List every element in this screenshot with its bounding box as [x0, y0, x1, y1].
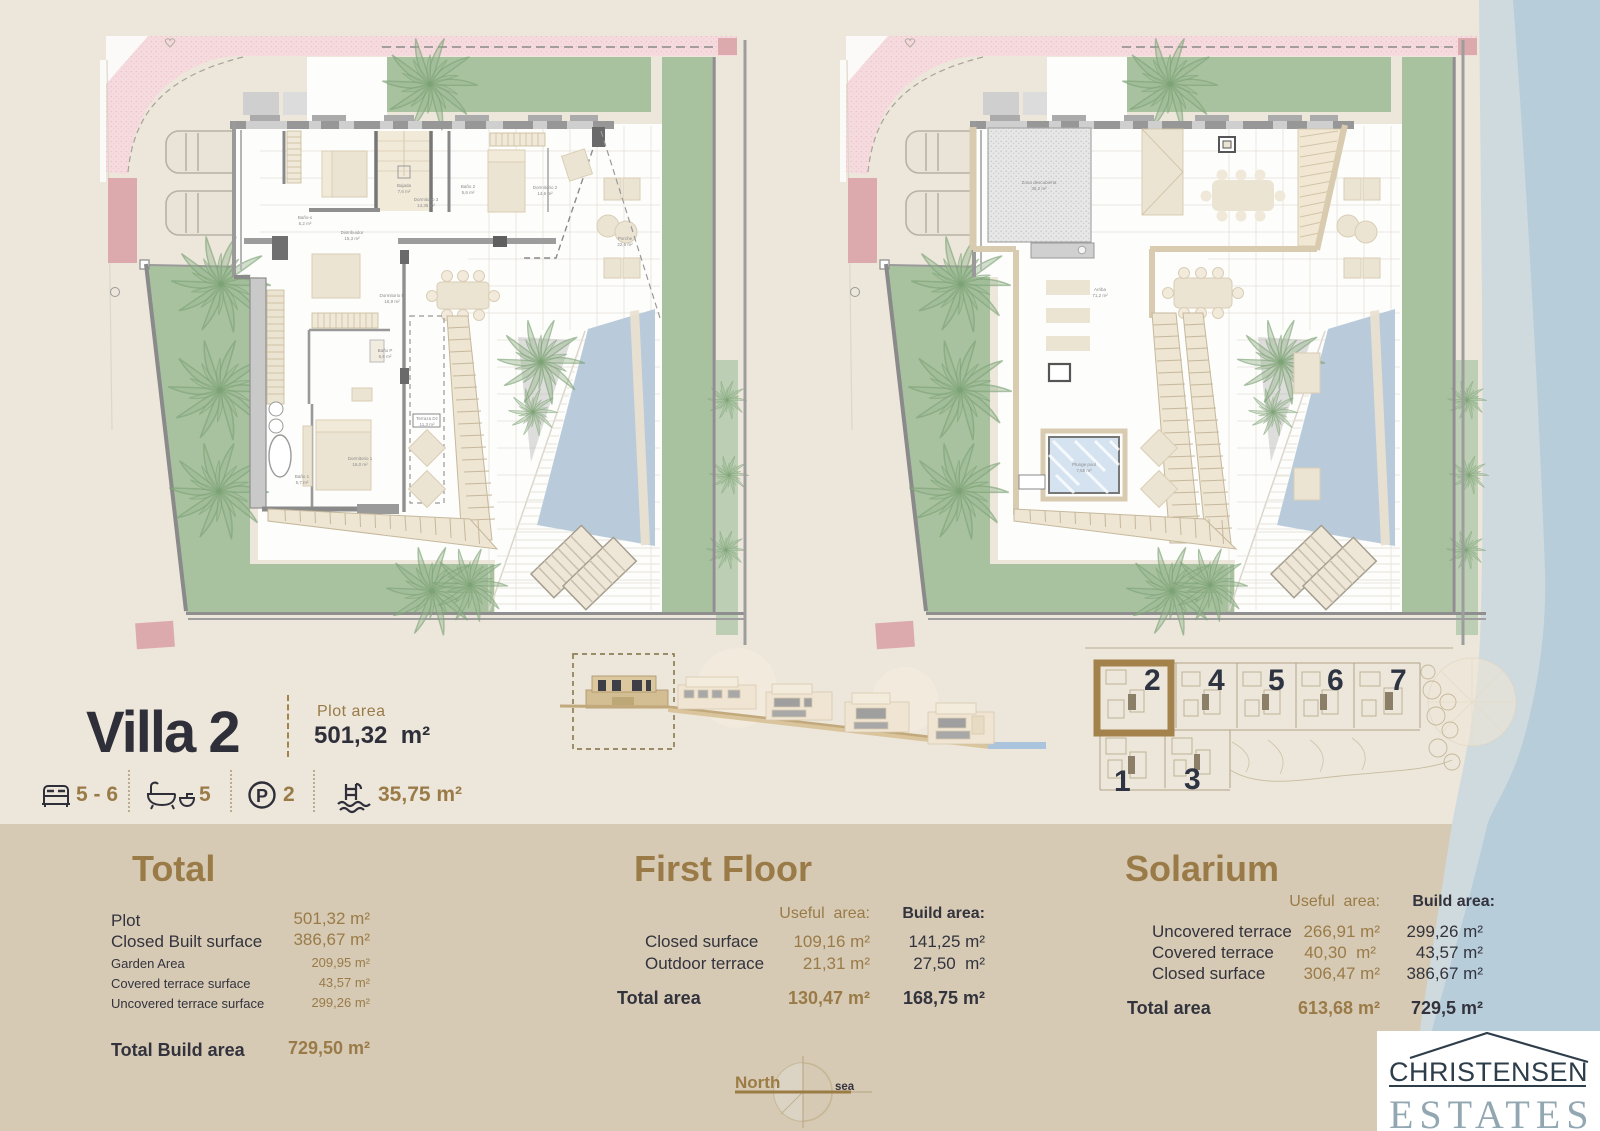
svg-text:14,6 m²: 14,6 m²	[537, 191, 553, 196]
svg-text:6,6 m²: 6,6 m²	[379, 354, 392, 359]
svg-text:P: P	[256, 786, 268, 806]
svg-text:22,6 m²: 22,6 m²	[617, 242, 633, 247]
svg-text:Dormitorio P: Dormitorio P	[379, 293, 404, 298]
svg-text:35,2 m²: 35,2 m²	[1031, 186, 1047, 191]
svg-text:Dormitorio 1: Dormitorio 1	[348, 456, 373, 461]
svg-text:Dormitorio 3: Dormitorio 3	[414, 197, 439, 202]
svg-text:Zona descubierta: Zona descubierta	[1022, 180, 1057, 185]
svg-text:Baño 1: Baño 1	[295, 474, 310, 479]
svg-text:Baño 2: Baño 2	[461, 184, 476, 189]
svg-text:6: 6	[1327, 664, 1344, 697]
svg-text:Plunge pool: Plunge pool	[1072, 462, 1096, 467]
svg-text:16,0 m²: 16,0 m²	[352, 462, 368, 467]
svg-text:Baño P: Baño P	[378, 348, 393, 353]
svg-text:Porche: Porche	[618, 236, 633, 241]
svg-text:Dormitorio 2: Dormitorio 2	[533, 185, 558, 190]
svg-text:Baño-s: Baño-s	[298, 215, 313, 220]
svg-text:7,6 m²: 7,6 m²	[398, 189, 411, 194]
svg-text:16,9 m²: 16,9 m²	[384, 299, 400, 304]
svg-text:2: 2	[1144, 664, 1161, 697]
svg-text:5,7 m²: 5,7 m²	[296, 480, 309, 485]
svg-text:7: 7	[1390, 664, 1407, 697]
svg-text:4: 4	[1208, 664, 1225, 697]
svg-text:7,55 m²: 7,55 m²	[1076, 468, 1092, 473]
svg-text:1: 1	[1114, 765, 1131, 798]
svg-text:Terraza Dz: Terraza Dz	[416, 416, 439, 421]
svg-text:11,3 m²: 11,3 m²	[420, 422, 435, 427]
svg-text:5,6 m²: 5,6 m²	[462, 190, 475, 195]
svg-text:14,35 m²: 14,35 m²	[417, 203, 435, 208]
svg-text:Bajada: Bajada	[397, 183, 412, 188]
svg-text:Distribuidor: Distribuidor	[341, 230, 364, 235]
svg-text:Arriba: Arriba	[1094, 287, 1107, 292]
svg-text:3: 3	[1184, 763, 1201, 796]
svg-text:5: 5	[1268, 664, 1285, 697]
svg-text:5,2 m²: 5,2 m²	[299, 221, 312, 226]
svg-text:15,3 m²: 15,3 m²	[344, 236, 360, 241]
svg-text:71,2 m²: 71,2 m²	[1092, 293, 1108, 298]
